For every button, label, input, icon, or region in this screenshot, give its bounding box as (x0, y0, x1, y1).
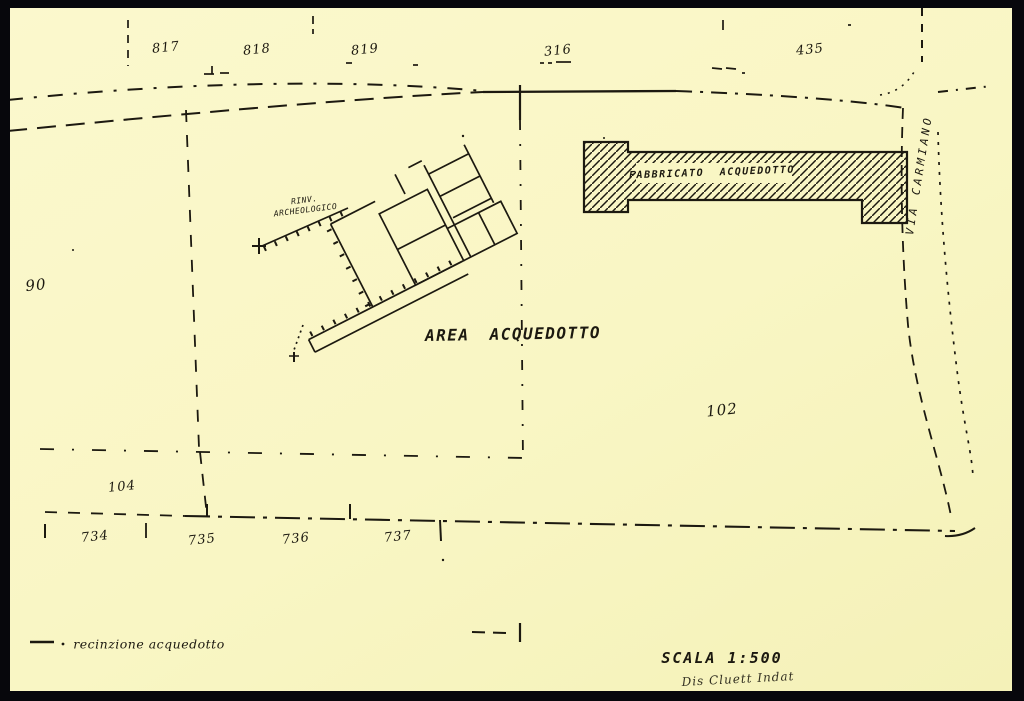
aqueduct-building (584, 142, 907, 223)
parcel-number-102: 102 (705, 399, 738, 420)
parcel-number-734: 734 (80, 528, 109, 546)
parcel-number-104: 104 (107, 478, 136, 496)
road-via-carmiano (880, 8, 992, 536)
road-top-left (10, 84, 483, 131)
legend-label: recinzione acquedotto (73, 637, 224, 652)
parcel-number-818: 818 (242, 41, 271, 59)
scan-specks (72, 135, 605, 561)
map-sheet: 817 818 819 316 435 90 102 104 734 735 7… (10, 8, 1012, 691)
survey-ticks (128, 8, 851, 74)
parcel-number-435: 435 (795, 41, 824, 59)
boundary-top-solid (483, 91, 676, 92)
parcel-number-737: 737 (383, 528, 412, 546)
legend-symbol (30, 642, 64, 645)
parcel-number-819: 819 (350, 41, 379, 59)
parcel-number-90: 90 (25, 275, 48, 295)
boundary-top-dashed (676, 91, 905, 108)
parcel-number-735: 735 (187, 531, 216, 549)
parcel-number-736: 736 (281, 530, 310, 548)
parcel-number-316: 316 (543, 42, 572, 60)
parcel-number-817: 817 (151, 39, 180, 57)
area-title: AREA ACQUEDOTTO (425, 323, 601, 345)
scan-frame: 817 818 819 316 435 90 102 104 734 735 7… (0, 0, 1024, 701)
scale-label: SCALA 1:500 (661, 649, 782, 667)
map-linework (10, 8, 1012, 691)
